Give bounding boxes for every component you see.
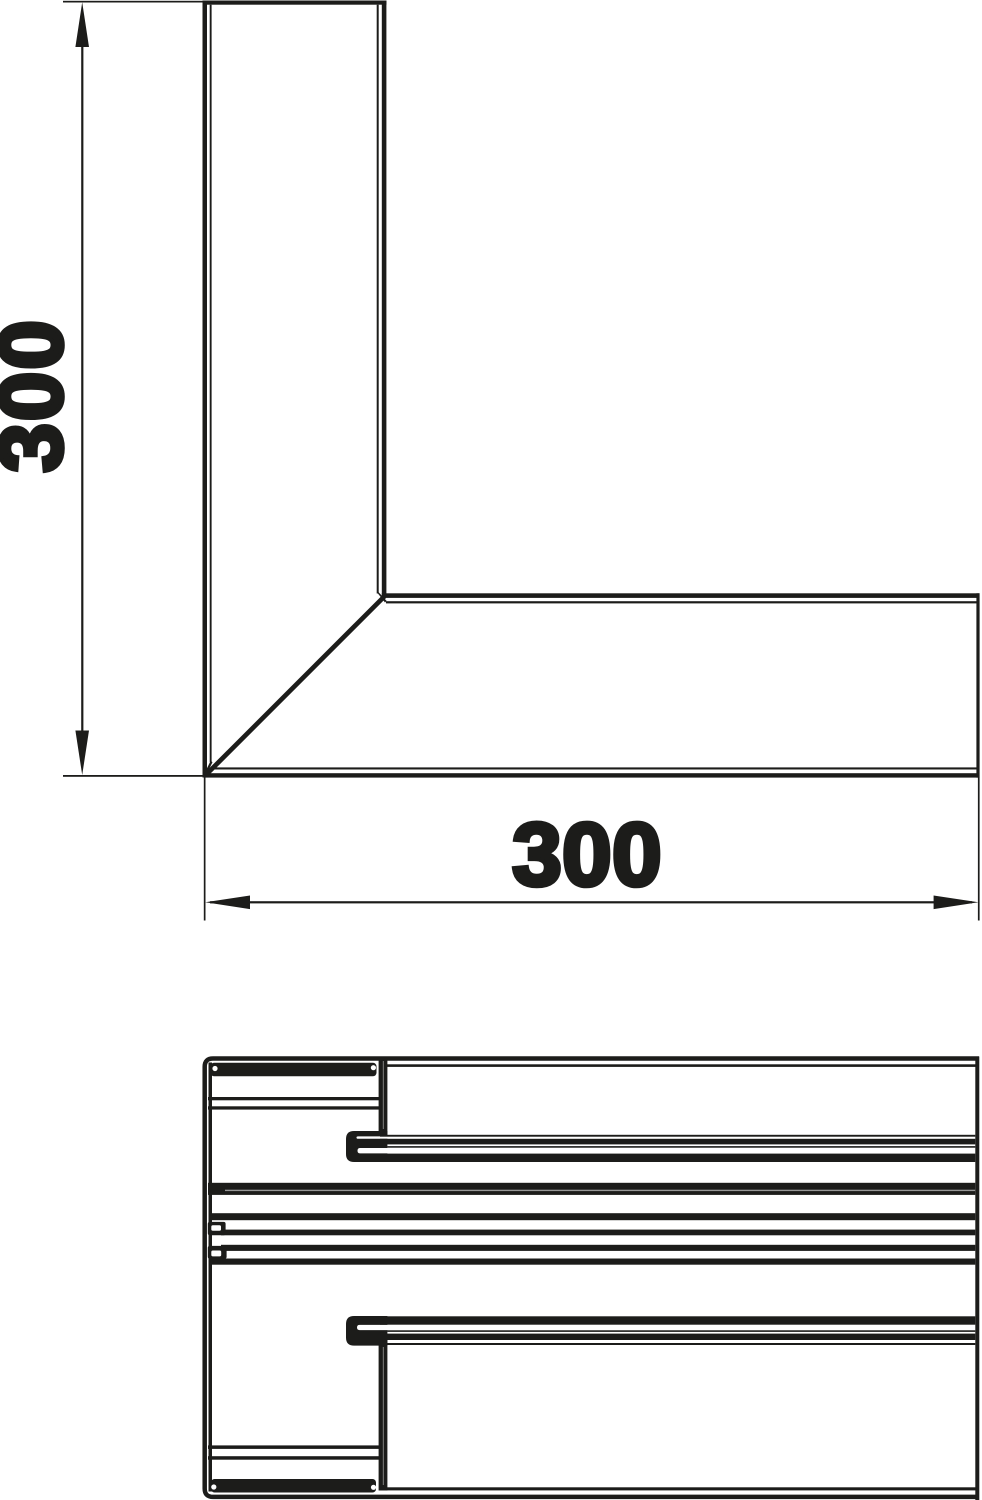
svg-text:300: 300 — [512, 804, 662, 904]
svg-text:300: 300 — [0, 318, 81, 473]
